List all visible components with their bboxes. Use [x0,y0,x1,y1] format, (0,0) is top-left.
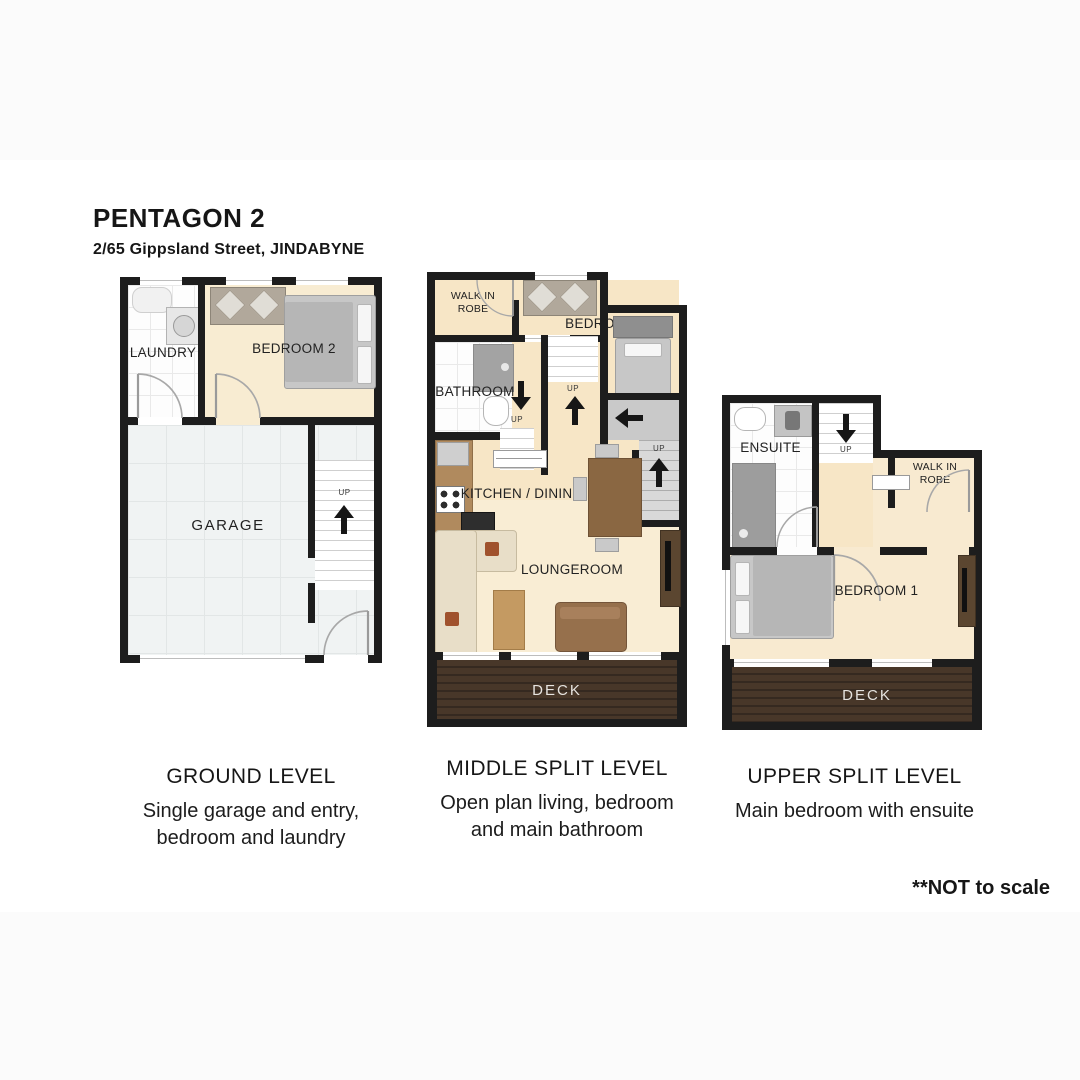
up-arrow-icon [565,396,585,428]
bedroom1-label: BEDROOM 1 [814,583,939,598]
bedroom2-label: BEDROOM 2 [214,341,374,356]
wall [679,305,687,727]
middle-level-description: Open plan living, bedroom and main bathr… [423,790,691,844]
description-line: Single garage and entry, [120,798,382,825]
page-title: PENTAGON 2 [93,203,364,234]
up-arrow-icon [334,505,354,539]
window-icon [535,272,587,280]
down-arrow-icon [511,376,531,410]
loveseat-icon [555,602,627,652]
window-icon [443,652,499,660]
ground-level-title: GROUND LEVEL [120,765,382,789]
wall [873,395,881,458]
floor-plan-middle: WALK IN ROBE BEDROOM 3 BATHROOM UP UP [427,272,687,727]
bench-seat-icon [523,280,597,316]
description-line: Main bedroom with ensuite [712,798,997,825]
shower-head-icon [739,529,748,538]
door-opening [834,547,880,555]
cushion-icon [526,281,557,312]
window-icon [589,652,661,660]
floorplan-page: PENTAGON 2 2/65 Gippsland Street, JINDAB… [0,0,1080,1080]
wall [722,395,881,403]
dining-table-icon [588,458,642,537]
sink-icon [785,411,800,430]
bathroom-label: BATHROOM [429,384,521,399]
stairs-up-label: UP [639,444,679,453]
middle-level-title: MIDDLE SPLIT LEVEL [423,757,691,781]
loveseat-back-icon [560,607,620,619]
window-icon [226,277,272,285]
bench-seat-icon [210,287,286,325]
stair-landing [819,463,873,547]
wall [600,393,679,400]
down-arrow-icon [836,409,856,443]
door-arc-icon [777,507,817,547]
garage-door-icon [140,655,305,663]
door-opening [927,547,969,555]
top-margin-band [0,0,1080,160]
chair-icon [595,538,619,552]
coffee-table-icon [493,590,525,650]
door-opening [138,417,182,425]
door-arc-icon [477,280,513,316]
window-icon [722,570,730,645]
ground-level-caption: GROUND LEVEL Single garage and entry, be… [120,765,382,852]
door-arc-icon [216,374,260,418]
description-line: Open plan living, bedroom [423,790,691,817]
wall [600,305,687,313]
deck-label: DECK [457,682,657,699]
description-line: bedroom and laundry [120,825,382,852]
window-icon [296,277,348,285]
description-line: and main bathroom [423,817,691,844]
door-arc-icon [138,374,182,418]
cushion-icon [248,289,279,320]
loungeroom-label: LOUNGEROOM [495,562,649,577]
cupboard-line [496,458,542,459]
window-icon [140,277,182,285]
door-arc-icon [324,611,368,655]
staircase [548,336,598,382]
upper-level-caption: UPPER SPLIT LEVEL Main bedroom with ensu… [712,765,997,825]
outline-notch [875,395,982,450]
chair-icon [573,477,587,501]
tv-unit-icon [958,555,976,627]
washing-machine-icon [166,307,201,345]
cupboard-icon [493,450,547,468]
floor-plan-upper: ENSUITE UP WALK IN ROBE BEDROOM 1 [722,395,982,730]
vanity-icon [774,405,812,437]
stairs-up-label: UP [552,384,594,393]
door-arc-icon [927,470,969,512]
cushion-icon [485,542,499,556]
cushion-icon [214,289,245,320]
upper-level-description: Main bedroom with ensuite [712,798,997,825]
pillow-icon [735,600,750,634]
cushion-icon [445,612,459,626]
middle-level-caption: MIDDLE SPLIT LEVEL Open plan living, bed… [423,757,691,844]
wall [198,285,205,417]
ensuite-label: ENSUITE [722,440,819,455]
sliding-door-icon [511,652,577,660]
door-opening [777,547,817,555]
door-opening [324,655,368,663]
stairs-up-label: UP [500,415,534,424]
door-opening [216,417,260,425]
window-icon [734,659,829,667]
tv-icon [665,541,671,591]
stairs-up-label: UP [819,445,873,454]
chair-icon [595,444,619,458]
tv-unit-icon [660,530,681,607]
toilet-icon [734,407,766,431]
wall [308,425,315,558]
page-subtitle: 2/65 Gippsland Street, JINDABYNE [93,241,364,259]
ground-level-description: Single garage and entry, bedroom and lau… [120,798,382,852]
garage-label: GARAGE [158,517,298,534]
pillow-icon [624,343,662,357]
laundry-label: LAUNDRY [125,345,201,360]
single-bed-icon [615,338,671,396]
not-to-scale-note: **NOT to scale [745,877,1050,900]
bottom-margin-band [0,912,1080,1080]
cushion-icon [559,281,590,312]
wardrobe-icon [613,316,673,338]
floor-plan-ground: LAUNDRY BEDROOM 2 GARAGE UP [120,277,382,663]
stairs-up-label: UP [315,488,374,497]
wall [308,583,315,623]
wall [427,719,687,727]
up-arrow-icon [649,458,669,490]
pillow-icon [735,562,750,596]
tv-icon [962,568,967,612]
deck-label: DECK [772,687,962,704]
kitchen-sink-icon [437,442,469,466]
sliding-door-icon [872,659,932,667]
left-arrow-icon [615,408,645,428]
pillow-icon [357,304,372,342]
shower-icon [732,463,776,549]
upper-level-title: UPPER SPLIT LEVEL [712,765,997,789]
corner-sofa-icon [435,530,477,662]
washing-machine-drum-icon [173,315,195,337]
shower-head-icon [501,363,509,371]
wall [722,722,982,730]
header: PENTAGON 2 2/65 Gippsland Street, JINDAB… [93,203,364,259]
wall [600,313,608,400]
